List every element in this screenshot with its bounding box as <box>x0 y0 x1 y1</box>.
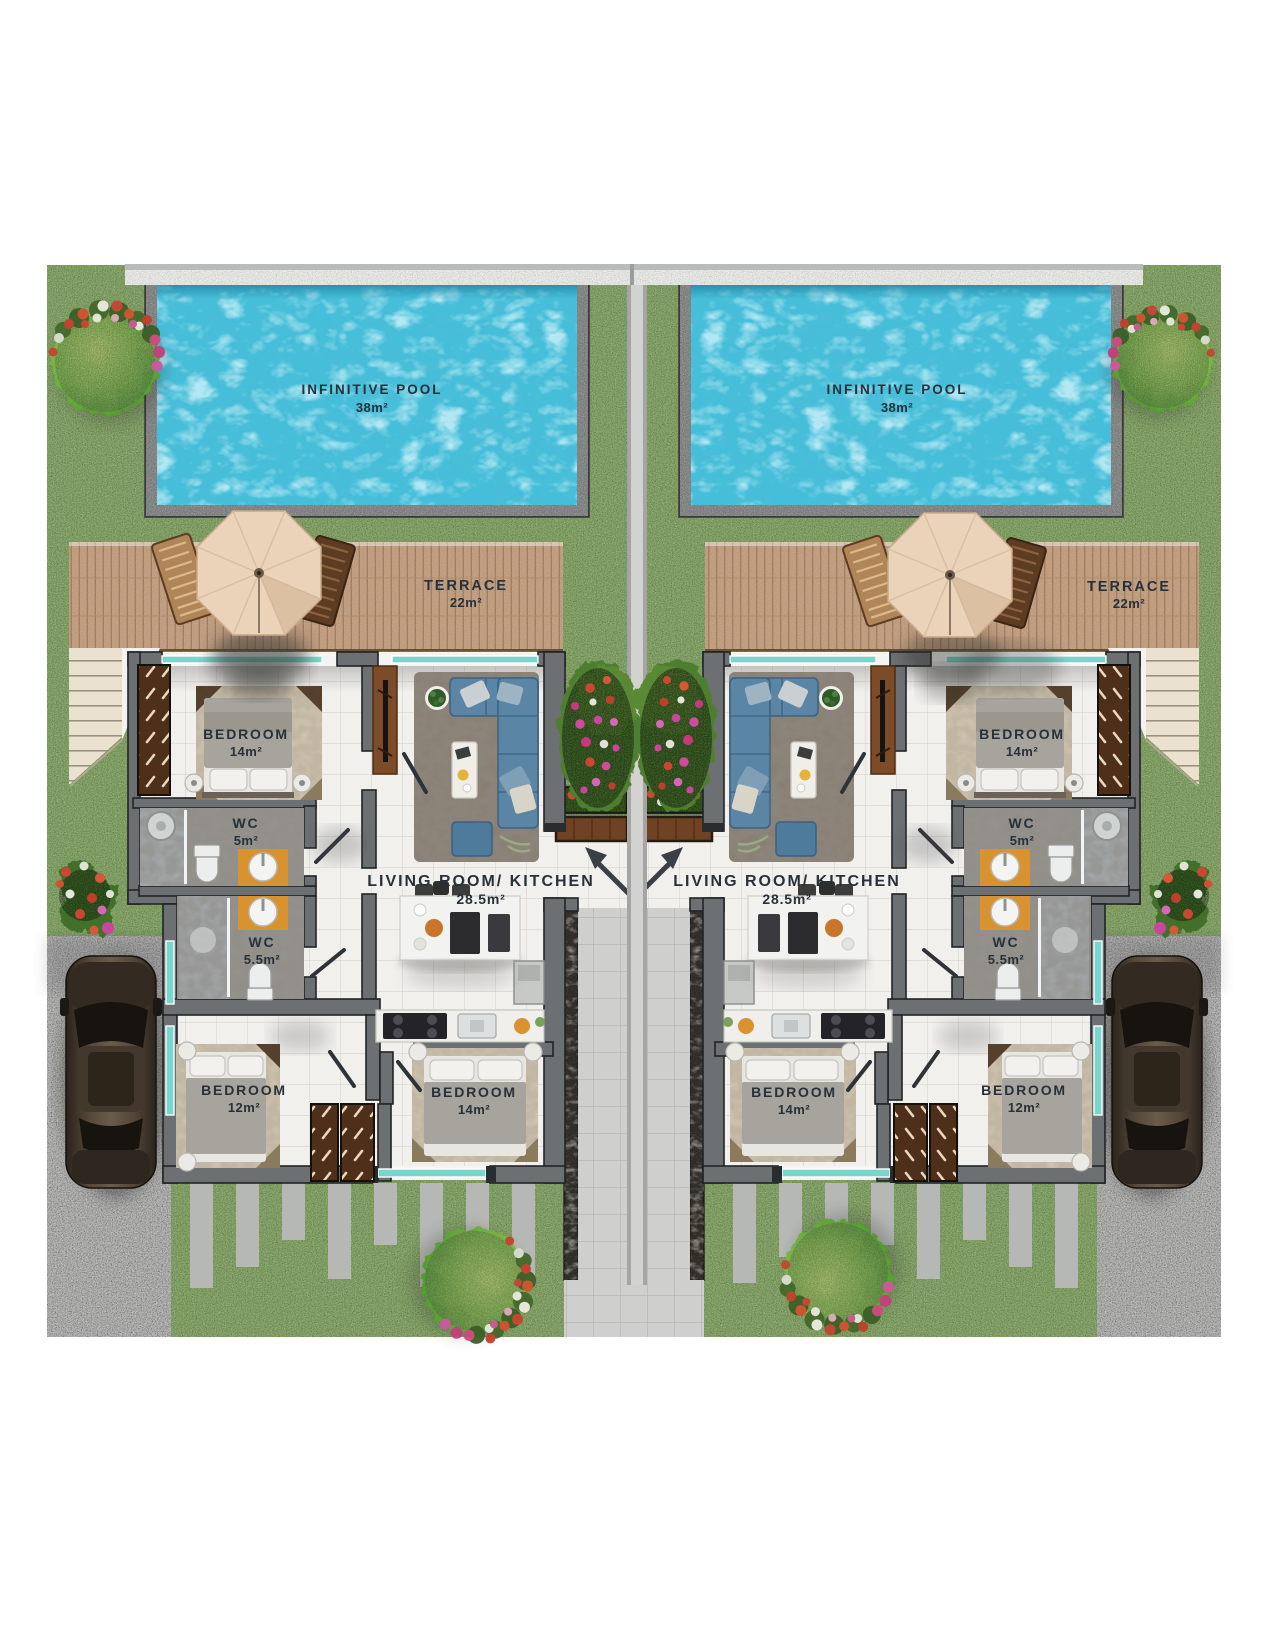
svg-text:BEDROOM: BEDROOM <box>203 726 289 742</box>
svg-text:38m²: 38m² <box>881 400 914 415</box>
svg-text:28.5m²: 28.5m² <box>762 891 811 907</box>
svg-text:INFINITIVE POOL: INFINITIVE POOL <box>826 382 967 397</box>
svg-text:12m²: 12m² <box>228 1100 261 1115</box>
svg-text:28.5m²: 28.5m² <box>456 891 505 907</box>
svg-text:TERRACE: TERRACE <box>424 578 508 594</box>
svg-text:WC: WC <box>233 815 260 831</box>
svg-text:5.5m²: 5.5m² <box>244 952 281 967</box>
svg-text:12m²: 12m² <box>1008 1100 1041 1115</box>
svg-text:5.5m²: 5.5m² <box>988 952 1025 967</box>
svg-text:LIVING ROOM/ KITCHEN: LIVING ROOM/ KITCHEN <box>673 873 901 890</box>
svg-text:TERRACE: TERRACE <box>1087 579 1171 595</box>
svg-text:5m²: 5m² <box>1010 833 1035 848</box>
svg-text:WC: WC <box>993 934 1020 950</box>
svg-text:INFINITIVE POOL: INFINITIVE POOL <box>301 382 442 397</box>
svg-text:BEDROOM: BEDROOM <box>201 1082 287 1098</box>
svg-text:14m²: 14m² <box>458 1102 491 1117</box>
svg-text:14m²: 14m² <box>1006 744 1039 759</box>
svg-text:14m²: 14m² <box>230 744 263 759</box>
svg-text:22m²: 22m² <box>1113 596 1146 611</box>
svg-text:BEDROOM: BEDROOM <box>431 1084 517 1100</box>
svg-text:LIVING ROOM/ KITCHEN: LIVING ROOM/ KITCHEN <box>367 873 595 890</box>
svg-text:WC: WC <box>1009 815 1036 831</box>
svg-text:14m²: 14m² <box>778 1102 811 1117</box>
svg-text:38m²: 38m² <box>356 400 389 415</box>
svg-text:BEDROOM: BEDROOM <box>751 1084 837 1100</box>
svg-text:WC: WC <box>249 934 276 950</box>
svg-text:22m²: 22m² <box>450 595 483 610</box>
svg-text:BEDROOM: BEDROOM <box>981 1082 1067 1098</box>
svg-text:5m²: 5m² <box>234 833 259 848</box>
svg-text:BEDROOM: BEDROOM <box>979 726 1065 742</box>
